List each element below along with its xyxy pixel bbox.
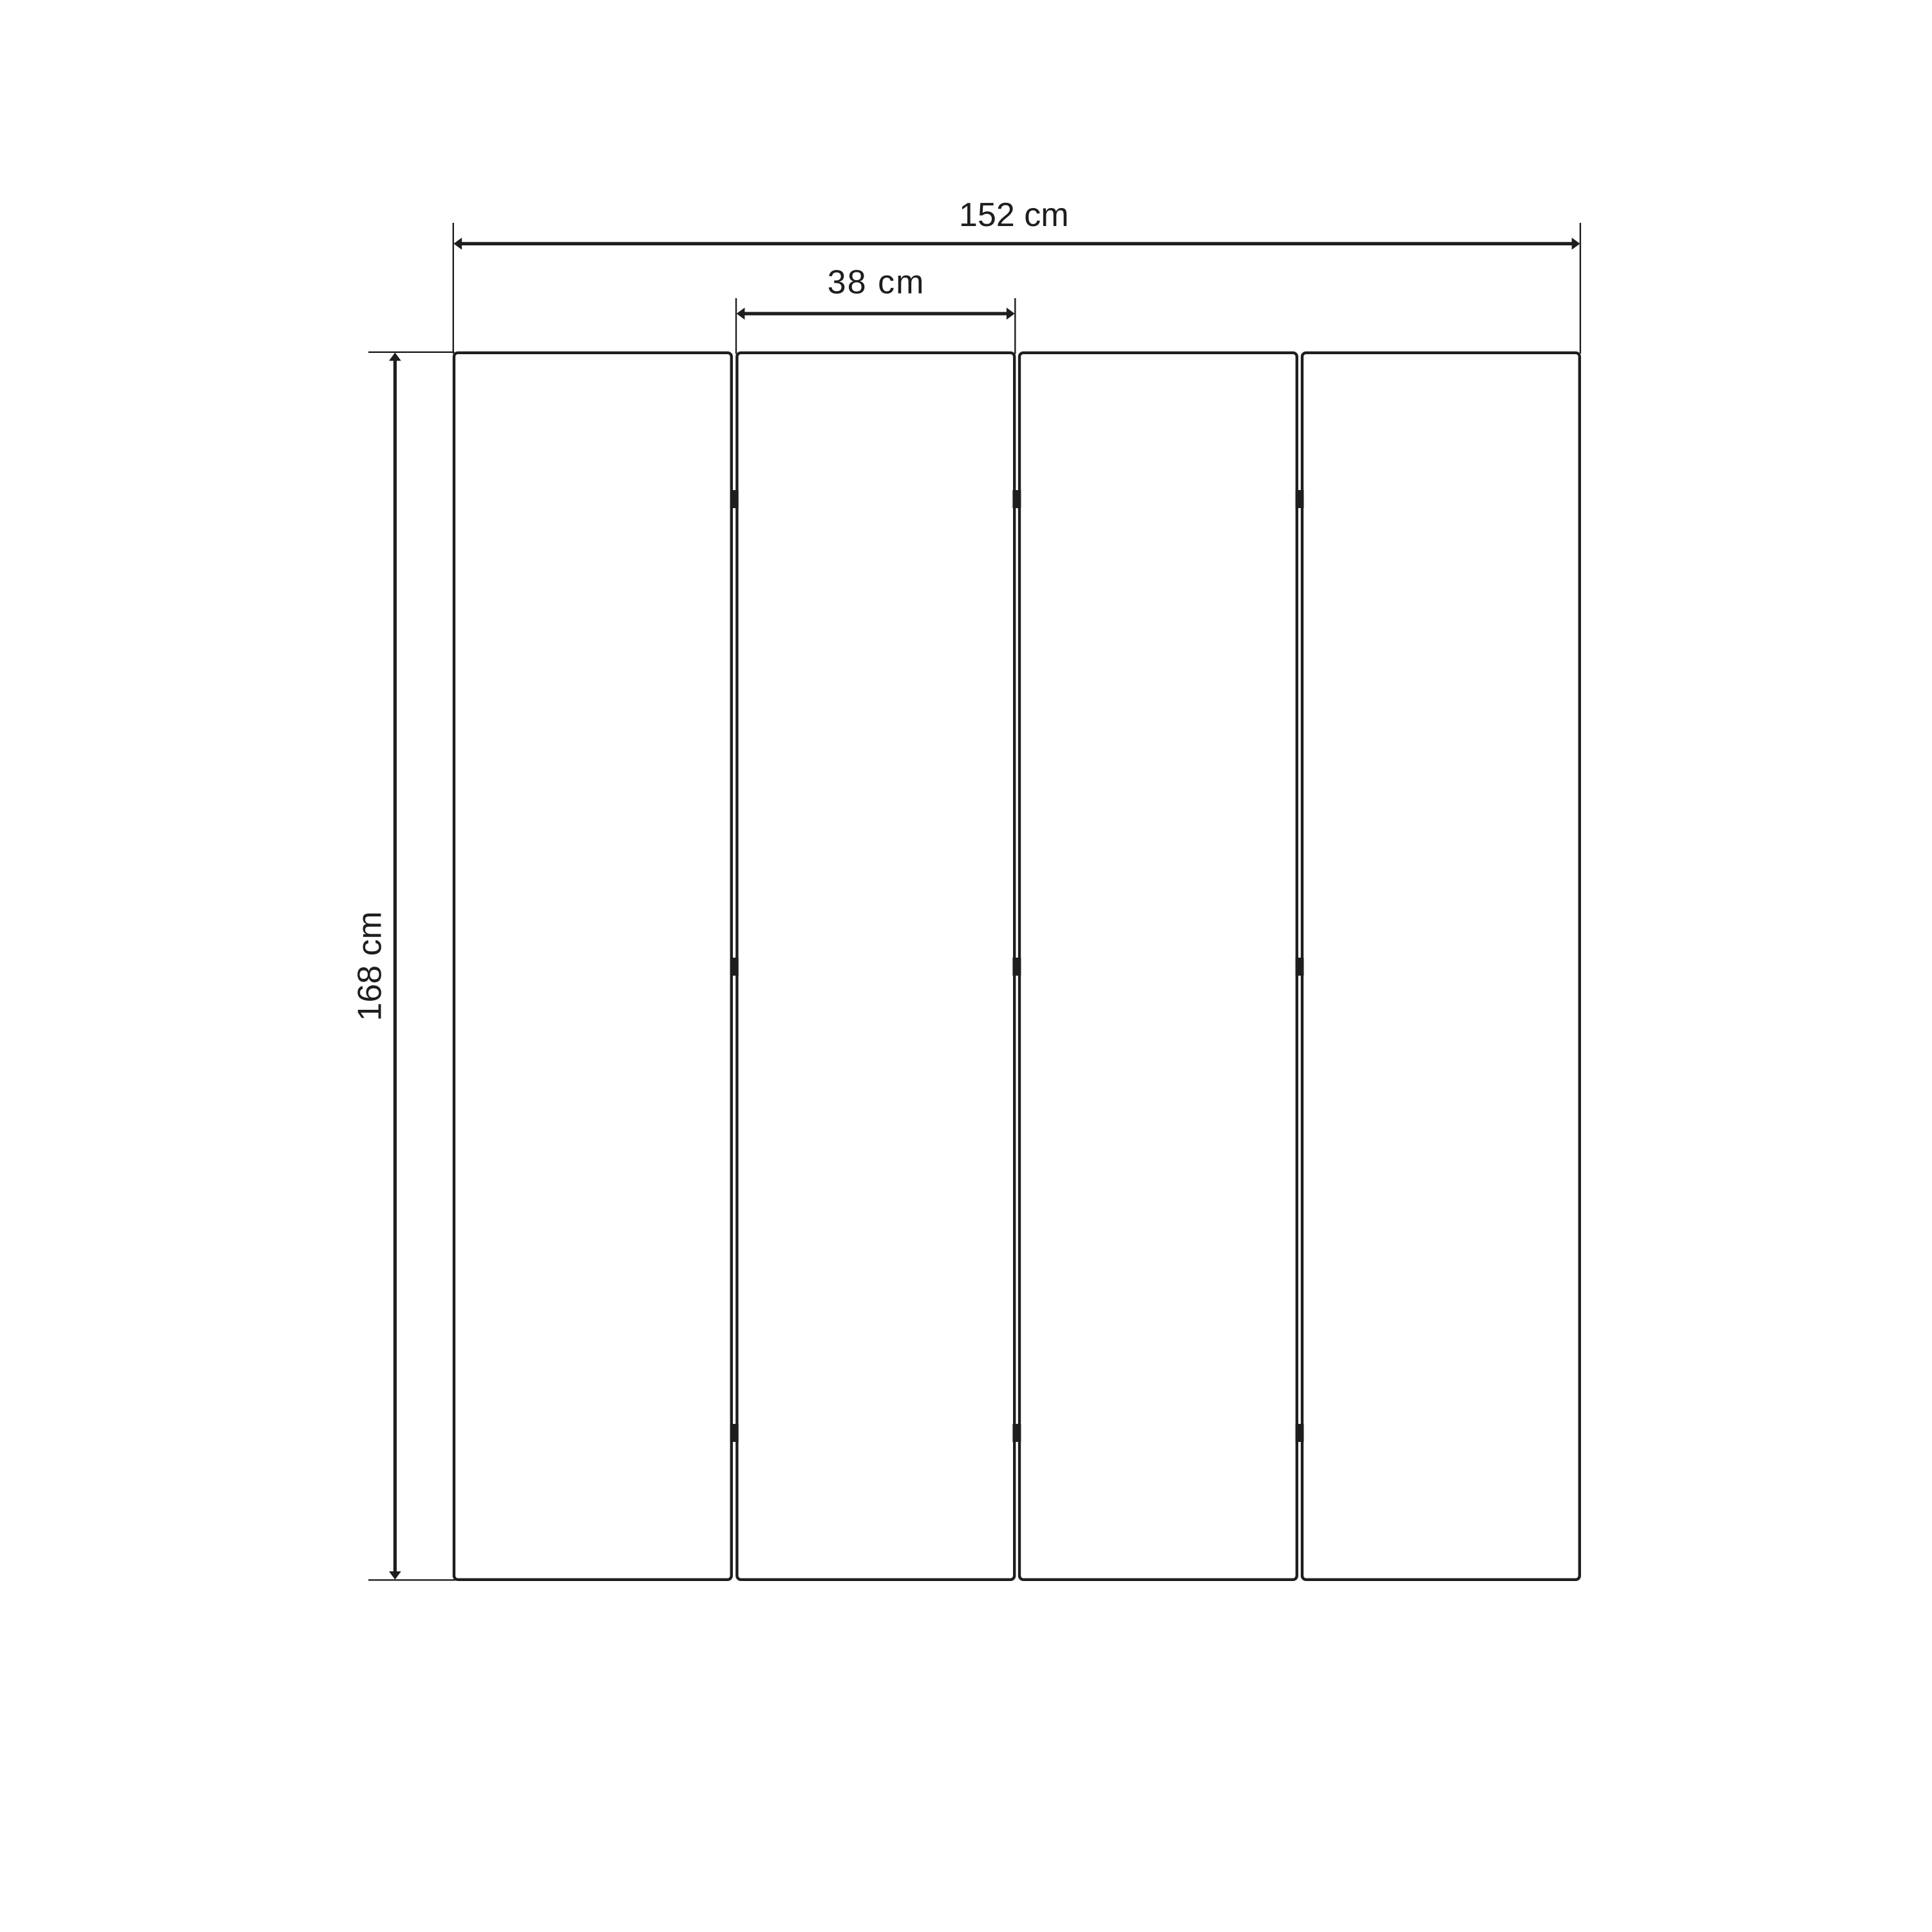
svg-text:168 cm: 168 cm: [352, 911, 389, 1021]
svg-text:152 cm: 152 cm: [959, 196, 1069, 234]
svg-text:38 cm: 38 cm: [828, 263, 925, 301]
